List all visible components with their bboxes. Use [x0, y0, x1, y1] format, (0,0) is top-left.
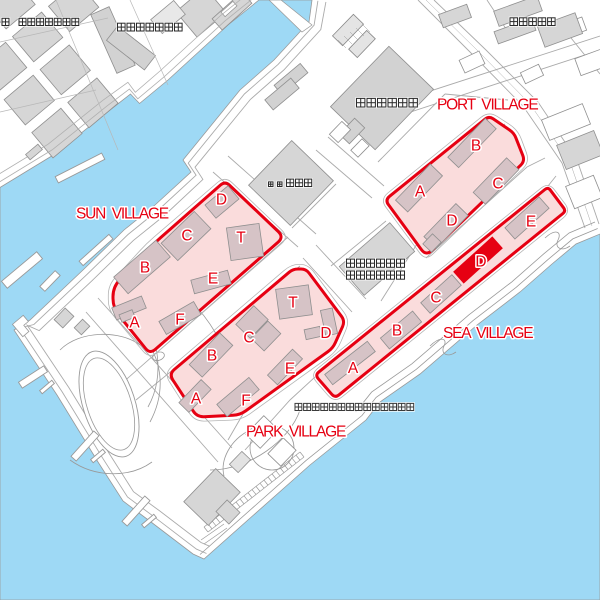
svg-text:A: A: [348, 360, 359, 377]
svg-text:E: E: [526, 214, 536, 231]
svg-text:B: B: [392, 323, 402, 340]
svg-text:C: C: [430, 290, 441, 307]
svg-text:E: E: [285, 361, 295, 378]
svg-text:B: B: [471, 138, 481, 155]
svg-text:PARK VILLAGE: PARK VILLAGE: [246, 424, 346, 441]
svg-text:D: D: [216, 192, 227, 209]
svg-text:T: T: [236, 230, 246, 247]
svg-text:A: A: [415, 184, 426, 201]
svg-text:F: F: [241, 393, 250, 410]
svg-text:SUN VILLAGE: SUN VILLAGE: [76, 206, 169, 223]
svg-text:E: E: [208, 271, 218, 288]
svg-text:PORT VILLAGE: PORT VILLAGE: [437, 97, 538, 114]
svg-text:C: C: [243, 330, 254, 347]
svg-text:A: A: [191, 391, 202, 408]
svg-text:D: D: [446, 213, 457, 230]
svg-text:B: B: [207, 348, 217, 365]
svg-text:F: F: [175, 312, 184, 329]
svg-text:C: C: [181, 228, 192, 245]
svg-text:A: A: [129, 315, 140, 332]
svg-text:C: C: [492, 176, 503, 193]
svg-text:D: D: [320, 325, 331, 342]
svg-text:SEA VILLAGE: SEA VILLAGE: [443, 325, 533, 342]
svg-text:T: T: [288, 295, 298, 312]
svg-text:D: D: [475, 254, 486, 271]
svg-text:B: B: [140, 260, 150, 277]
